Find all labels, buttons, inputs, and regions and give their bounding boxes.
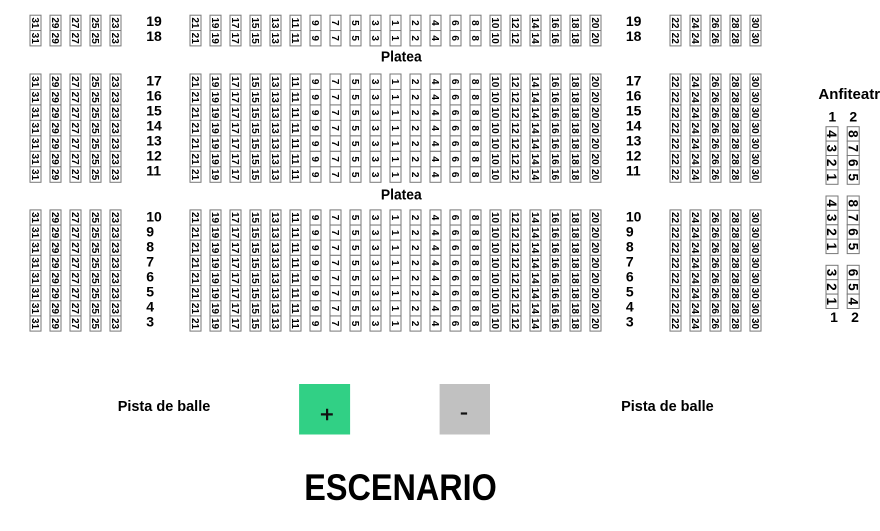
svg-text:14: 14 — [529, 257, 540, 269]
svg-text:27: 27 — [69, 33, 80, 45]
svg-text:21: 21 — [189, 76, 200, 88]
svg-text:23: 23 — [109, 227, 120, 239]
svg-text:3: 3 — [369, 290, 380, 296]
svg-text:14: 14 — [529, 242, 540, 254]
svg-text:26: 26 — [709, 273, 720, 285]
svg-text:26: 26 — [709, 123, 720, 135]
svg-text:10: 10 — [489, 257, 500, 269]
svg-text:14: 14 — [529, 288, 540, 300]
svg-text:29: 29 — [49, 92, 60, 104]
svg-text:19: 19 — [209, 318, 220, 330]
svg-text:14: 14 — [529, 273, 540, 285]
svg-text:31: 31 — [29, 273, 40, 285]
svg-text:9: 9 — [309, 125, 320, 131]
svg-text:15: 15 — [249, 318, 260, 330]
svg-text:14: 14 — [626, 117, 642, 133]
svg-text:12: 12 — [509, 212, 520, 224]
svg-text:24: 24 — [689, 123, 700, 135]
svg-text:18: 18 — [569, 242, 580, 254]
svg-text:8: 8 — [469, 35, 480, 41]
svg-text:22: 22 — [669, 257, 680, 269]
svg-text:17: 17 — [229, 303, 240, 315]
svg-text:6: 6 — [449, 141, 460, 147]
svg-text:26: 26 — [709, 33, 720, 45]
svg-text:2: 2 — [409, 230, 420, 236]
svg-text:9: 9 — [309, 290, 320, 296]
svg-text:18: 18 — [569, 169, 580, 181]
svg-text:18: 18 — [569, 123, 580, 135]
svg-text:30: 30 — [749, 123, 760, 135]
svg-text:22: 22 — [669, 242, 680, 254]
svg-text:3: 3 — [146, 314, 154, 330]
svg-text:23: 23 — [109, 33, 120, 45]
svg-text:3: 3 — [369, 79, 380, 85]
svg-text:11: 11 — [289, 288, 300, 299]
svg-text:10: 10 — [489, 169, 500, 181]
svg-text:13: 13 — [269, 154, 280, 166]
svg-text:26: 26 — [709, 138, 720, 150]
svg-text:21: 21 — [189, 154, 200, 166]
svg-text:28: 28 — [729, 318, 740, 330]
svg-text:7: 7 — [329, 141, 340, 147]
svg-text:16: 16 — [549, 273, 560, 285]
svg-text:21: 21 — [189, 33, 200, 45]
svg-text:15: 15 — [249, 92, 260, 104]
svg-text:2: 2 — [409, 306, 420, 312]
svg-text:4: 4 — [429, 156, 440, 162]
svg-text:6: 6 — [449, 230, 460, 236]
svg-text:17: 17 — [229, 76, 240, 88]
svg-text:18: 18 — [569, 273, 580, 285]
svg-text:31: 31 — [29, 303, 40, 315]
svg-text:3: 3 — [824, 269, 839, 277]
svg-text:14: 14 — [529, 303, 540, 315]
svg-text:10: 10 — [489, 242, 500, 254]
svg-text:12: 12 — [509, 242, 520, 254]
svg-text:10: 10 — [489, 288, 500, 300]
svg-text:20: 20 — [589, 318, 600, 330]
svg-text:1: 1 — [389, 230, 400, 236]
svg-text:5: 5 — [845, 173, 860, 181]
svg-text:3: 3 — [626, 314, 634, 330]
svg-text:12: 12 — [626, 147, 642, 163]
svg-text:1: 1 — [389, 125, 400, 131]
svg-text:5: 5 — [349, 260, 360, 266]
svg-text:1: 1 — [389, 215, 400, 221]
svg-text:2: 2 — [409, 125, 420, 131]
svg-text:19: 19 — [209, 33, 220, 45]
svg-text:22: 22 — [669, 123, 680, 135]
svg-text:16: 16 — [549, 227, 560, 239]
svg-text:4: 4 — [146, 299, 154, 315]
svg-text:13: 13 — [146, 132, 162, 148]
svg-text:26: 26 — [709, 212, 720, 224]
svg-text:31: 31 — [29, 17, 40, 29]
svg-text:19: 19 — [209, 273, 220, 285]
svg-text:1: 1 — [389, 172, 400, 178]
svg-text:7: 7 — [329, 172, 340, 178]
svg-text:19: 19 — [209, 17, 220, 29]
svg-text:15: 15 — [249, 33, 260, 45]
svg-text:3: 3 — [824, 145, 839, 153]
svg-text:9: 9 — [309, 245, 320, 251]
svg-text:8: 8 — [469, 172, 480, 178]
svg-text:7: 7 — [329, 260, 340, 266]
svg-text:7: 7 — [626, 254, 634, 270]
svg-text:6: 6 — [449, 94, 460, 100]
svg-text:24: 24 — [689, 227, 700, 239]
svg-text:12: 12 — [509, 33, 520, 45]
svg-text:1: 1 — [389, 245, 400, 251]
svg-text:12: 12 — [509, 154, 520, 166]
svg-text:12: 12 — [509, 318, 520, 330]
svg-text:10: 10 — [489, 318, 500, 330]
svg-text:4: 4 — [429, 94, 440, 100]
svg-text:17: 17 — [229, 212, 240, 224]
svg-text:12: 12 — [509, 227, 520, 239]
svg-text:28: 28 — [729, 303, 740, 315]
svg-text:6: 6 — [626, 269, 634, 285]
svg-text:1: 1 — [389, 290, 400, 296]
svg-text:9: 9 — [309, 20, 320, 26]
svg-text:5: 5 — [349, 35, 360, 41]
svg-text:4: 4 — [429, 245, 440, 251]
svg-text:19: 19 — [209, 257, 220, 269]
svg-text:23: 23 — [109, 303, 120, 315]
svg-text:5: 5 — [349, 306, 360, 312]
svg-text:8: 8 — [469, 260, 480, 266]
svg-text:11: 11 — [289, 243, 300, 254]
svg-text:27: 27 — [69, 92, 80, 104]
svg-text:29: 29 — [49, 123, 60, 135]
svg-text:14: 14 — [529, 169, 540, 181]
svg-text:31: 31 — [29, 257, 40, 269]
svg-text:17: 17 — [229, 92, 240, 104]
svg-text:6: 6 — [146, 269, 154, 285]
svg-text:26: 26 — [709, 76, 720, 88]
svg-text:27: 27 — [69, 154, 80, 166]
svg-text:7: 7 — [329, 125, 340, 131]
svg-text:21: 21 — [189, 123, 200, 135]
svg-text:1: 1 — [824, 298, 839, 306]
svg-text:21: 21 — [189, 318, 200, 330]
svg-text:19: 19 — [209, 107, 220, 119]
svg-text:20: 20 — [589, 273, 600, 285]
svg-text:ESCENARIO: ESCENARIO — [304, 467, 497, 508]
svg-text:7: 7 — [329, 110, 340, 116]
svg-text:28: 28 — [729, 107, 740, 119]
svg-text:4: 4 — [429, 35, 440, 41]
svg-text:1: 1 — [389, 35, 400, 41]
svg-text:1: 1 — [389, 260, 400, 266]
svg-text:13: 13 — [269, 76, 280, 88]
svg-text:19: 19 — [209, 288, 220, 300]
svg-text:31: 31 — [29, 242, 40, 254]
svg-text:11: 11 — [289, 154, 300, 165]
svg-text:19: 19 — [209, 227, 220, 239]
svg-text:2: 2 — [409, 20, 420, 26]
svg-text:14: 14 — [529, 33, 540, 45]
svg-text:28: 28 — [729, 212, 740, 224]
svg-text:21: 21 — [189, 288, 200, 300]
svg-text:8: 8 — [469, 245, 480, 251]
svg-text:18: 18 — [569, 288, 580, 300]
svg-text:16: 16 — [549, 288, 560, 300]
svg-text:7: 7 — [329, 20, 340, 26]
svg-text:2: 2 — [409, 94, 420, 100]
svg-text:25: 25 — [89, 138, 100, 150]
svg-text:17: 17 — [229, 17, 240, 29]
svg-text:24: 24 — [689, 107, 700, 119]
svg-text:7: 7 — [329, 215, 340, 221]
svg-text:24: 24 — [689, 138, 700, 150]
svg-text:7: 7 — [146, 254, 154, 270]
svg-text:21: 21 — [189, 273, 200, 285]
svg-text:4: 4 — [429, 141, 440, 147]
svg-text:30: 30 — [749, 318, 760, 330]
svg-text:1: 1 — [830, 309, 838, 325]
svg-text:27: 27 — [69, 288, 80, 300]
svg-text:31: 31 — [29, 92, 40, 104]
svg-text:27: 27 — [69, 303, 80, 315]
svg-text:5: 5 — [349, 230, 360, 236]
svg-text:6: 6 — [449, 125, 460, 131]
svg-text:24: 24 — [689, 303, 700, 315]
svg-text:5: 5 — [349, 79, 360, 85]
svg-text:25: 25 — [89, 257, 100, 269]
svg-text:10: 10 — [489, 107, 500, 119]
svg-text:30: 30 — [749, 169, 760, 181]
svg-text:9: 9 — [309, 306, 320, 312]
svg-text:8: 8 — [469, 290, 480, 296]
svg-text:26: 26 — [709, 303, 720, 315]
svg-text:31: 31 — [29, 227, 40, 239]
svg-text:24: 24 — [689, 92, 700, 104]
svg-text:9: 9 — [309, 260, 320, 266]
svg-text:30: 30 — [749, 33, 760, 45]
svg-text:4: 4 — [429, 125, 440, 131]
svg-text:24: 24 — [689, 17, 700, 29]
svg-text:25: 25 — [89, 169, 100, 181]
svg-text:28: 28 — [729, 33, 740, 45]
svg-text:16: 16 — [146, 87, 162, 103]
svg-text:8: 8 — [146, 238, 154, 254]
svg-text:2: 2 — [409, 245, 420, 251]
svg-text:11: 11 — [626, 163, 641, 179]
svg-text:30: 30 — [749, 154, 760, 166]
svg-text:18: 18 — [569, 138, 580, 150]
svg-text:14: 14 — [146, 117, 162, 133]
svg-text:13: 13 — [269, 212, 280, 224]
svg-text:10: 10 — [146, 208, 162, 224]
svg-text:15: 15 — [249, 242, 260, 254]
svg-text:21: 21 — [189, 303, 200, 315]
svg-text:24: 24 — [689, 318, 700, 330]
svg-text:7: 7 — [329, 230, 340, 236]
svg-text:6: 6 — [449, 275, 460, 281]
svg-text:4: 4 — [429, 230, 440, 236]
svg-text:25: 25 — [89, 303, 100, 315]
svg-text:26: 26 — [709, 242, 720, 254]
svg-text:3: 3 — [369, 275, 380, 281]
svg-text:3: 3 — [369, 94, 380, 100]
svg-text:25: 25 — [89, 33, 100, 45]
svg-text:18: 18 — [569, 107, 580, 119]
svg-text:21: 21 — [189, 92, 200, 104]
svg-text:7: 7 — [329, 290, 340, 296]
svg-text:11: 11 — [289, 92, 300, 103]
svg-text:20: 20 — [589, 76, 600, 88]
svg-text:27: 27 — [69, 242, 80, 254]
svg-text:6: 6 — [449, 215, 460, 221]
svg-text:20: 20 — [589, 138, 600, 150]
svg-text:28: 28 — [729, 138, 740, 150]
svg-text:9: 9 — [309, 79, 320, 85]
svg-text:13: 13 — [269, 107, 280, 119]
svg-text:14: 14 — [529, 107, 540, 119]
svg-text:14: 14 — [529, 76, 540, 88]
svg-text:29: 29 — [49, 212, 60, 224]
svg-text:15: 15 — [249, 212, 260, 224]
svg-text:30: 30 — [749, 76, 760, 88]
svg-text:15: 15 — [249, 123, 260, 135]
svg-text:Platea: Platea — [381, 49, 422, 66]
svg-text:11: 11 — [146, 163, 161, 179]
svg-text:5: 5 — [349, 275, 360, 281]
svg-text:31: 31 — [29, 318, 40, 330]
svg-text:12: 12 — [509, 76, 520, 88]
svg-text:3: 3 — [369, 172, 380, 178]
svg-text:4: 4 — [429, 172, 440, 178]
svg-text:12: 12 — [509, 138, 520, 150]
svg-text:10: 10 — [489, 227, 500, 239]
svg-text:2: 2 — [409, 275, 420, 281]
svg-text:27: 27 — [69, 123, 80, 135]
svg-text:22: 22 — [669, 318, 680, 330]
svg-text:27: 27 — [69, 169, 80, 181]
svg-text:22: 22 — [669, 212, 680, 224]
svg-text:5: 5 — [349, 125, 360, 131]
svg-text:26: 26 — [709, 169, 720, 181]
svg-text:2: 2 — [824, 228, 839, 236]
svg-text:25: 25 — [89, 76, 100, 88]
svg-text:1: 1 — [389, 79, 400, 85]
svg-text:31: 31 — [29, 33, 40, 45]
svg-text:5: 5 — [626, 284, 634, 300]
svg-text:26: 26 — [709, 154, 720, 166]
svg-text:10: 10 — [489, 303, 500, 315]
svg-text:9: 9 — [309, 110, 320, 116]
svg-text:1: 1 — [389, 20, 400, 26]
svg-text:23: 23 — [109, 169, 120, 181]
svg-text:8: 8 — [626, 238, 634, 254]
svg-text:18: 18 — [146, 28, 162, 44]
svg-text:14: 14 — [529, 154, 540, 166]
svg-text:18: 18 — [569, 257, 580, 269]
svg-text:13: 13 — [269, 288, 280, 300]
svg-text:4: 4 — [626, 299, 634, 315]
svg-text:2: 2 — [409, 141, 420, 147]
svg-text:20: 20 — [589, 257, 600, 269]
svg-text:17: 17 — [229, 227, 240, 239]
svg-text:7: 7 — [845, 145, 860, 153]
svg-text:22: 22 — [669, 33, 680, 45]
svg-text:15: 15 — [249, 17, 260, 29]
svg-text:30: 30 — [749, 92, 760, 104]
svg-text:20: 20 — [589, 169, 600, 181]
svg-text:29: 29 — [49, 154, 60, 166]
svg-text:5: 5 — [349, 172, 360, 178]
svg-text:17: 17 — [229, 288, 240, 300]
svg-text:25: 25 — [89, 288, 100, 300]
svg-text:2: 2 — [409, 215, 420, 221]
svg-text:4: 4 — [845, 298, 860, 306]
svg-text:5: 5 — [146, 284, 154, 300]
svg-text:19: 19 — [209, 169, 220, 181]
svg-text:23: 23 — [109, 273, 120, 285]
svg-text:11: 11 — [289, 123, 300, 134]
svg-text:21: 21 — [189, 169, 200, 181]
svg-text:27: 27 — [69, 107, 80, 119]
svg-text:19: 19 — [209, 92, 220, 104]
svg-text:22: 22 — [669, 273, 680, 285]
svg-text:30: 30 — [749, 138, 760, 150]
svg-text:3: 3 — [369, 306, 380, 312]
svg-text:4: 4 — [429, 306, 440, 312]
svg-text:29: 29 — [49, 227, 60, 239]
svg-text:11: 11 — [289, 33, 300, 44]
svg-text:23: 23 — [109, 288, 120, 300]
svg-text:13: 13 — [269, 17, 280, 29]
svg-text:22: 22 — [669, 169, 680, 181]
svg-text:18: 18 — [569, 17, 580, 29]
svg-text:19: 19 — [209, 242, 220, 254]
svg-text:7: 7 — [329, 245, 340, 251]
svg-text:18: 18 — [569, 212, 580, 224]
svg-text:3: 3 — [369, 110, 380, 116]
svg-text:20: 20 — [589, 288, 600, 300]
svg-text:3: 3 — [369, 35, 380, 41]
svg-text:10: 10 — [489, 17, 500, 29]
svg-text:21: 21 — [189, 257, 200, 269]
svg-text:29: 29 — [49, 318, 60, 330]
svg-text:27: 27 — [69, 17, 80, 29]
svg-text:7: 7 — [329, 306, 340, 312]
svg-text:11: 11 — [289, 76, 300, 87]
svg-text:24: 24 — [689, 33, 700, 45]
svg-text:13: 13 — [269, 257, 280, 269]
svg-text:2: 2 — [409, 172, 420, 178]
svg-text:11: 11 — [289, 273, 300, 284]
svg-text:23: 23 — [109, 92, 120, 104]
svg-text:7: 7 — [329, 35, 340, 41]
svg-text:24: 24 — [689, 154, 700, 166]
svg-text:26: 26 — [709, 17, 720, 29]
svg-text:15: 15 — [249, 107, 260, 119]
svg-text:19: 19 — [146, 13, 162, 29]
svg-text:13: 13 — [269, 33, 280, 45]
svg-text:9: 9 — [309, 215, 320, 221]
svg-text:23: 23 — [109, 212, 120, 224]
svg-text:16: 16 — [549, 138, 560, 150]
svg-text:25: 25 — [89, 92, 100, 104]
svg-text:30: 30 — [749, 227, 760, 239]
svg-text:30: 30 — [749, 242, 760, 254]
svg-text:15: 15 — [249, 76, 260, 88]
svg-text:2: 2 — [824, 159, 839, 167]
svg-text:Platea: Platea — [381, 187, 422, 204]
svg-text:18: 18 — [569, 33, 580, 45]
